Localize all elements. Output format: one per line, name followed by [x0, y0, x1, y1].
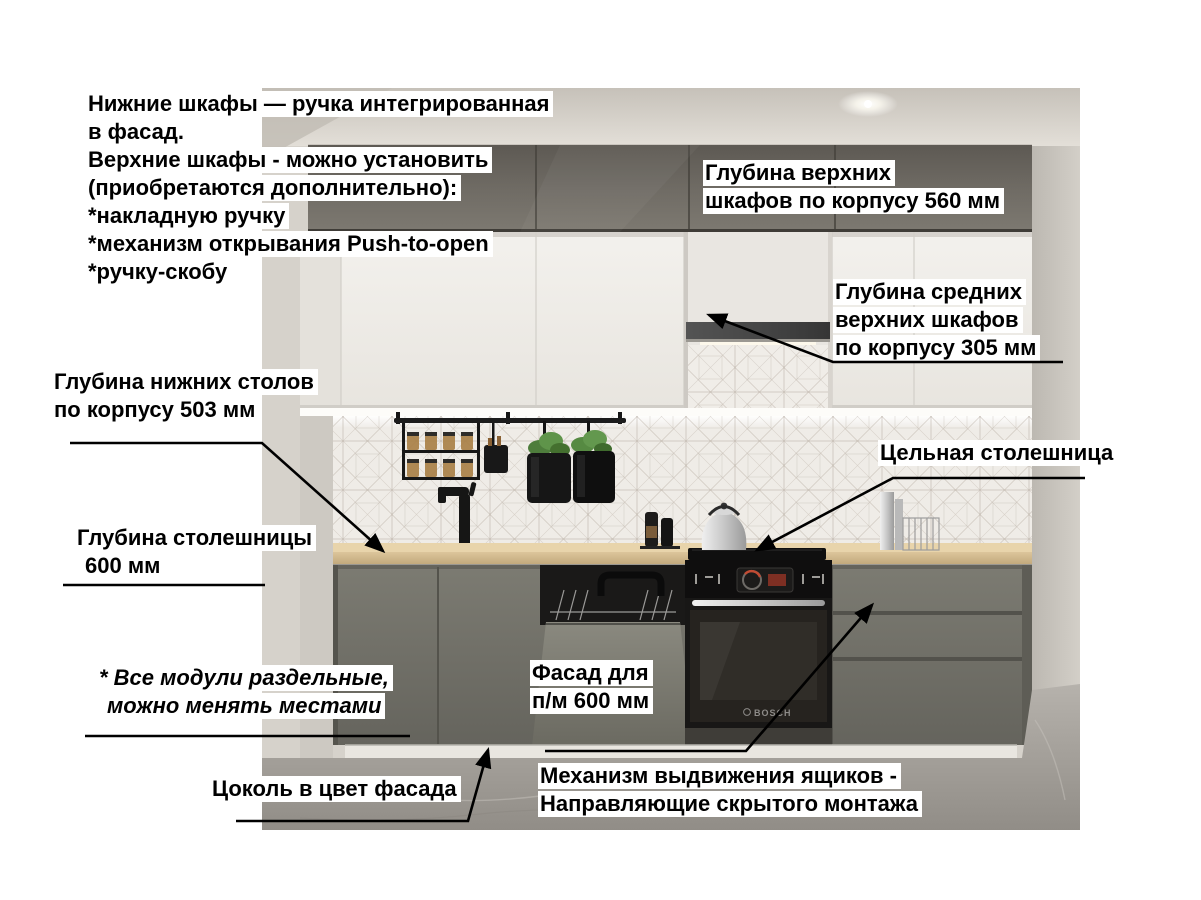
annotation-line: Нижние шкафы — ручка интегрированная — [86, 91, 553, 117]
annotation-line: по корпусу 305 мм — [833, 335, 1040, 361]
annotation-line: Направляющие скрытого монтажа — [538, 791, 922, 817]
annotation-line: можно менять местами — [105, 693, 385, 719]
annotation-modules-note: * Все модули раздельные, можно менять ме… — [97, 664, 393, 720]
annotation-upper-depth: Глубина верхних шкафов по корпусу 560 мм — [703, 159, 1004, 215]
annotation-line: *накладную ручку — [86, 203, 289, 229]
annotation-line: п/м 600 мм — [530, 688, 653, 714]
led-strip — [300, 408, 1032, 416]
annotation-line: *ручку-скобу — [86, 259, 231, 285]
annotation-line: 600 мм — [83, 553, 164, 579]
annotation-plinth: Цоколь в цвет фасада — [210, 775, 461, 803]
annotation-countertop-solid: Цельная столешница — [878, 439, 1117, 467]
range-hood — [686, 322, 830, 345]
annotation-line: Глубина нижних столов — [52, 369, 318, 395]
annotation-line: по корпусу 503 мм — [52, 397, 259, 423]
annotation-line: Фасад для — [530, 660, 653, 686]
annotation-dishwasher-facade: Фасад для п/м 600 мм — [530, 659, 653, 715]
hood-niche — [684, 232, 832, 408]
annotation-line: Механизм выдвижения ящиков - — [538, 763, 901, 789]
annotation-line: *механизм открывания Push-to-open — [86, 231, 493, 257]
annotation-mid-upper-depth: Глубина средних верхних шкафов по корпус… — [833, 278, 1040, 362]
annotation-line: в фасад. — [86, 119, 188, 145]
annotation-line: * Все модули раздельные, — [97, 665, 393, 691]
annotation-line: Глубина столешницы — [75, 525, 316, 551]
oven-handle — [692, 600, 825, 606]
hood-light — [700, 342, 816, 345]
annotation-line: шкафов по корпусу 560 мм — [703, 188, 1004, 214]
annotation-line: Верхние шкафы - можно установить — [86, 147, 492, 173]
annotation-handles-note: Нижние шкафы — ручка интегрированная в ф… — [86, 90, 553, 286]
dishwasher — [532, 565, 696, 751]
annotation-countertop-depth: Глубина столешницы 600 мм — [75, 524, 316, 580]
right-wall — [1032, 88, 1080, 708]
oven: BOSCH — [685, 560, 832, 745]
annotation-line: Глубина средних — [833, 279, 1026, 305]
annotation-base-depth: Глубина нижних столов по корпусу 503 мм — [52, 368, 318, 424]
annotation-line: Цоколь в цвет фасада — [210, 776, 461, 802]
annotation-line: (приобретаются дополнительно): — [86, 175, 461, 201]
annotation-line: Глубина верхних — [703, 160, 895, 186]
annotation-drawer-mechanism: Механизм выдвижения ящиков - Направляющи… — [538, 762, 922, 818]
plinth — [345, 745, 1017, 760]
annotation-line: верхних шкафов — [833, 307, 1023, 333]
oven-brand-text: BOSCH — [754, 708, 792, 718]
kitchen-annotation-page: BOSCH — [0, 0, 1201, 900]
annotation-line: Цельная столешница — [878, 440, 1117, 466]
